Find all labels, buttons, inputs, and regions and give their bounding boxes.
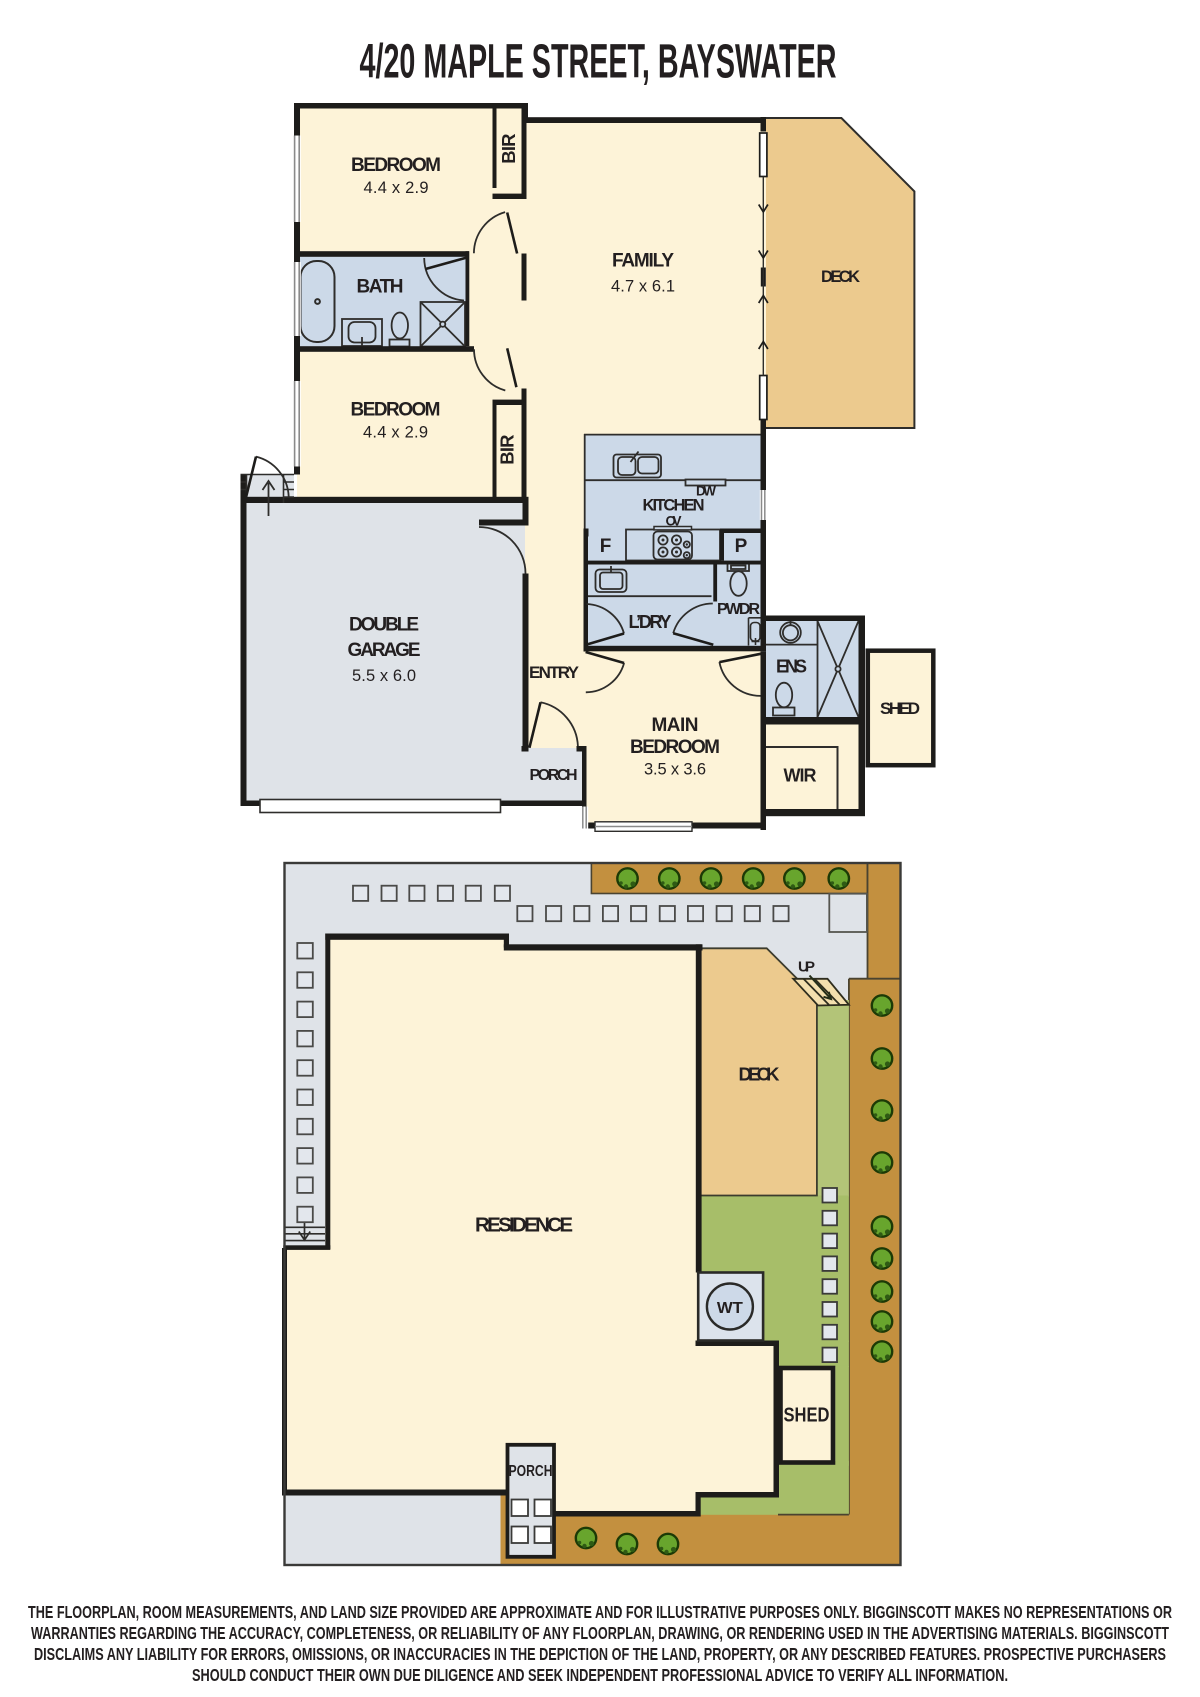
svg-text:THE FLOORPLAN, ROOM MEASUREMEN: THE FLOORPLAN, ROOM MEASUREMENTS, AND LA…	[28, 1602, 1172, 1622]
svg-text:ENS: ENS	[776, 657, 807, 677]
svg-text:ENTRY: ENTRY	[529, 663, 580, 682]
svg-text:P: P	[735, 536, 748, 557]
svg-text:4.7 x 6.1: 4.7 x 6.1	[611, 278, 675, 296]
svg-text:PWDR: PWDR	[717, 601, 760, 618]
svg-text:BATH: BATH	[357, 277, 404, 298]
svg-text:DECK: DECK	[739, 1064, 781, 1085]
svg-text:4/20 MAPLE STREET, BAYSWATER: 4/20 MAPLE STREET, BAYSWATER	[360, 36, 837, 89]
svg-text:PORCH: PORCH	[530, 767, 578, 784]
svg-text:WARRANTIES REGARDING THE ACCUR: WARRANTIES REGARDING THE ACCURACY, COMPL…	[31, 1623, 1169, 1643]
svg-text:MAIN: MAIN	[652, 715, 699, 736]
svg-text:RESIDENCE: RESIDENCE	[475, 1214, 573, 1237]
svg-text:BIR: BIR	[498, 134, 519, 164]
svg-text:SHED: SHED	[880, 699, 920, 718]
svg-text:DOUBLE: DOUBLE	[349, 615, 419, 636]
svg-text:4.4 x 2.9: 4.4 x 2.9	[364, 179, 429, 197]
svg-text:SHED: SHED	[784, 1405, 830, 1427]
svg-text:BEDROOM: BEDROOM	[630, 737, 720, 758]
svg-text:DISCLAIMS ANY LIABILITY FOR ER: DISCLAIMS ANY LIABILITY FOR ERRORS, OMIS…	[34, 1644, 1166, 1664]
svg-text:F: F	[600, 536, 612, 557]
svg-text:DW: DW	[696, 484, 716, 499]
svg-text:KITCHEN: KITCHEN	[643, 497, 705, 515]
svg-text:BEDROOM: BEDROOM	[351, 400, 441, 421]
svg-text:4.4 x 2.9: 4.4 x 2.9	[363, 424, 428, 442]
svg-text:5.5 x 6.0: 5.5 x 6.0	[352, 667, 416, 685]
svg-text:BIR: BIR	[497, 435, 518, 465]
svg-text:GARAGE: GARAGE	[348, 640, 421, 661]
svg-text:BEDROOM: BEDROOM	[351, 155, 441, 176]
svg-text:FAMILY: FAMILY	[612, 251, 674, 272]
svg-text:WIR: WIR	[784, 766, 817, 786]
svg-text:SHOULD CONDUCT THEIR OWN DUE D: SHOULD CONDUCT THEIR OWN DUE DILIGENCE A…	[192, 1665, 1008, 1685]
svg-text:PORCH: PORCH	[509, 1463, 553, 1480]
svg-text:3.5 x 3.6: 3.5 x 3.6	[644, 761, 706, 779]
svg-text:OV: OV	[666, 514, 682, 529]
svg-text:L’DRY: L’DRY	[629, 612, 672, 632]
svg-text:UP: UP	[798, 959, 815, 976]
svg-text:DECK: DECK	[821, 268, 860, 286]
svg-text:WT: WT	[717, 1300, 743, 1317]
